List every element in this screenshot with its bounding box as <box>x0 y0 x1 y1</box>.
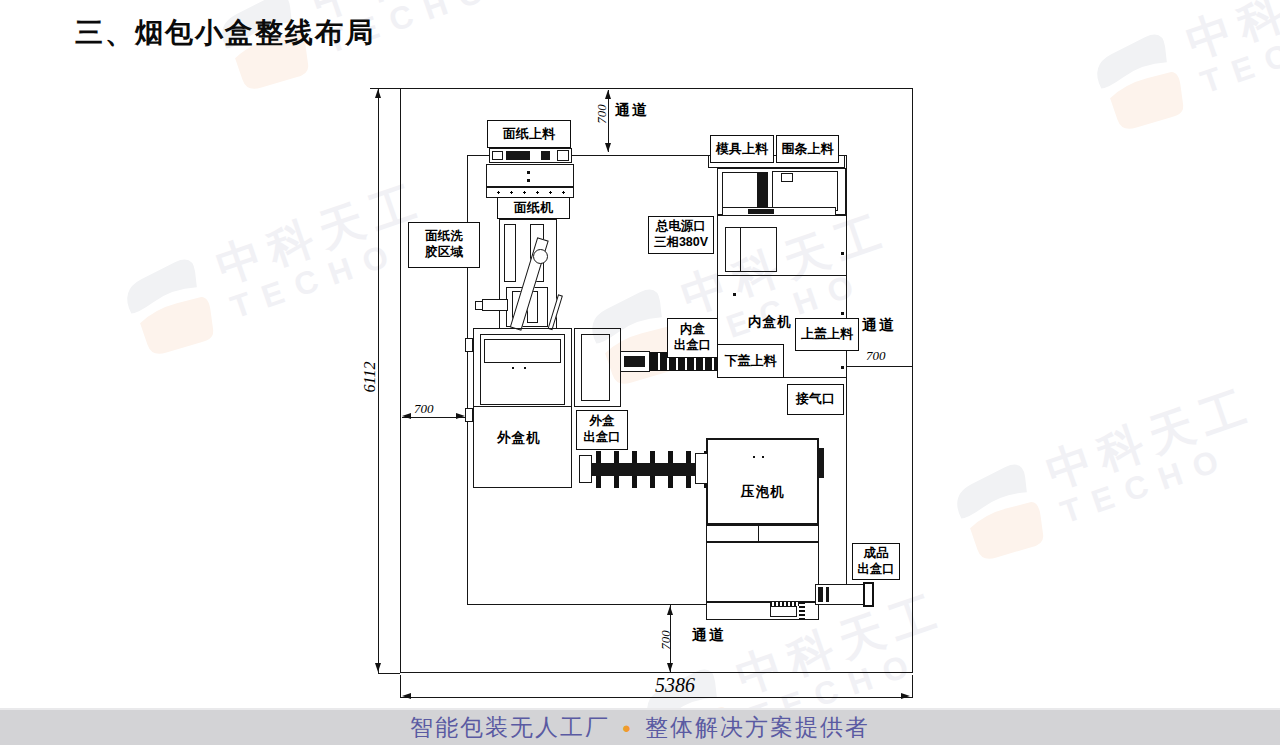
inner-box-machine-label: 内盒机 <box>748 313 792 331</box>
cad-part <box>841 252 844 255</box>
label-line: 内盒 <box>680 322 705 338</box>
cad-line <box>758 525 759 542</box>
arm-joint <box>533 249 548 264</box>
watermark-cn: 中科天工 <box>210 176 430 292</box>
dim-line-5386 <box>400 697 913 698</box>
label-top-lid-feed: 上盖上料 <box>795 318 859 351</box>
arrow-icon <box>605 143 611 152</box>
techo-logo-icon <box>1084 26 1195 139</box>
cad-line <box>473 406 572 407</box>
cad-part <box>725 227 777 272</box>
label-line: 成品 <box>864 546 889 562</box>
press-machine <box>706 438 819 525</box>
cad-line <box>378 673 400 674</box>
cad-part <box>475 301 483 310</box>
footer-bar: 智能包装无人工厂 ● 整体解决方案提供者 <box>0 708 1280 745</box>
cad-part <box>581 334 610 401</box>
cad-part <box>506 151 530 160</box>
label-line: 胶区域 <box>425 245 463 261</box>
cad-part <box>527 179 530 182</box>
cad-part <box>484 339 561 363</box>
label-line: 出盒口 <box>674 338 712 354</box>
arrow-icon <box>402 693 411 699</box>
cad-part <box>624 356 645 367</box>
corridor-label-right: 通道 <box>862 316 896 335</box>
dim-700-bottom: 700 <box>658 618 674 662</box>
corridor-label-bottom: 通道 <box>692 626 726 645</box>
cad-part <box>492 151 503 160</box>
dim-6112: 6112 <box>361 335 379 419</box>
cad-part <box>579 455 592 483</box>
press-machine-lower <box>706 542 819 602</box>
cad-part <box>524 367 526 369</box>
dim-700-left: 700 <box>414 401 434 417</box>
arrow-icon <box>667 663 673 672</box>
cad-part <box>583 463 707 476</box>
footer-slogan-left: 智能包装无人工厂 <box>410 712 610 743</box>
conveyor-end-cap <box>863 582 874 607</box>
watermark-en: TECHO <box>1196 0 1280 100</box>
label-line: 总电源口 <box>656 219 706 235</box>
cad-part <box>527 171 530 174</box>
press-machine-strip <box>706 525 819 542</box>
arrow-icon <box>901 693 910 699</box>
label-outer-box-outlet: 外盒 出盒口 <box>576 410 628 450</box>
label-glue-wash-area: 面纸洗 胶区域 <box>408 222 480 268</box>
label-inner-box-outlet: 内盒 出盒口 <box>667 318 718 358</box>
page-title: 三、烟包小盒整线布局 <box>75 14 375 52</box>
watermark: 中科天工TECHO <box>944 381 1274 570</box>
cad-part <box>695 453 708 484</box>
cad-part <box>557 150 569 161</box>
techo-logo-icon <box>944 456 1055 569</box>
watermark-cn: 中科天工 <box>1040 381 1260 497</box>
label-ring-feed: 围条上料 <box>776 135 839 163</box>
cad-part <box>733 293 736 296</box>
cad-part <box>841 366 844 369</box>
arrow-icon <box>375 89 381 98</box>
footer-slogan-right: 整体解决方案提供者 <box>645 712 870 743</box>
dim-700-top: 700 <box>594 92 610 136</box>
slide: 中科天工TECHO 中科天工TECHO 中科天工TECHO 中科天工TECHO … <box>0 0 1280 745</box>
outer-box-machine-label: 外盒机 <box>497 429 541 447</box>
cad-part <box>762 456 764 458</box>
label-main-power: 总电源口 三相380V <box>648 216 714 254</box>
cad-part <box>512 367 514 369</box>
cad-part <box>819 448 824 478</box>
bullet-icon: ● <box>622 719 633 736</box>
dim-line-right <box>847 366 913 367</box>
label-air-port: 接气口 <box>787 384 844 415</box>
cad-part <box>748 209 774 214</box>
watermark-cn: 中科天工 <box>1180 0 1280 67</box>
label-paper-machine: 面纸机 <box>497 197 570 219</box>
label-product-outlet: 成品 出盒口 <box>852 543 900 580</box>
label-line: 出盒口 <box>583 430 621 446</box>
label-line: 外盒 <box>590 414 615 430</box>
corridor-label-top: 通道 <box>615 101 649 120</box>
arrow-icon <box>667 606 673 615</box>
watermark: 中科天工TECHO <box>114 176 444 365</box>
arrow-icon <box>402 413 411 419</box>
cad-part <box>770 606 797 617</box>
label-bottom-lid-feed: 下盖上料 <box>717 344 784 378</box>
press-machine-label: 压泡机 <box>741 483 785 501</box>
watermark: 中科天工TECHO <box>1084 0 1280 139</box>
cad-part <box>541 151 550 160</box>
arrow-icon <box>375 663 381 672</box>
cad-part <box>841 312 844 315</box>
label-paper-feed: 面纸上料 <box>487 120 571 148</box>
cad-part <box>465 408 473 422</box>
cad-part <box>465 338 473 352</box>
cad-part <box>757 172 767 210</box>
dim-700-right: 700 <box>866 348 886 364</box>
cad-part <box>753 456 755 458</box>
cad-part <box>799 602 805 620</box>
label-line: 面纸洗 <box>425 229 463 245</box>
label-line: 出盒口 <box>857 562 895 578</box>
label-mold-feed: 模具上料 <box>710 135 774 163</box>
dim-5386: 5386 <box>630 674 720 697</box>
cad-line <box>912 675 913 697</box>
cad-line <box>400 675 401 697</box>
cad-part <box>818 587 823 602</box>
techo-logo-icon <box>114 251 225 364</box>
arrow-icon <box>456 413 465 419</box>
cad-line <box>740 227 741 272</box>
cad-part <box>504 224 516 282</box>
label-line: 三相380V <box>654 235 708 251</box>
paper-hopper <box>486 164 574 187</box>
cad-line <box>717 275 847 276</box>
watermark-en: TECHO <box>1056 427 1271 530</box>
cad-part <box>826 587 829 602</box>
cad-part <box>781 173 793 182</box>
cad-part <box>482 299 508 311</box>
